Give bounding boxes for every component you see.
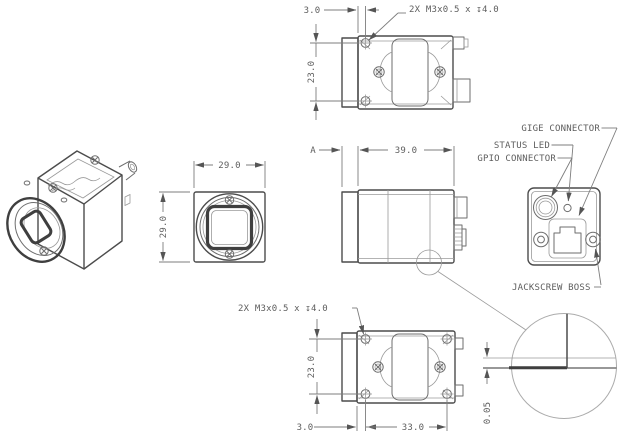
bottom-m3-hole — [441, 388, 454, 401]
front-view — [194, 192, 265, 262]
side-view — [342, 190, 526, 330]
jackscrew-boss-right — [586, 232, 601, 247]
bottom-dim-pitch: 33.0 — [402, 423, 424, 433]
gige-connector-label: GIGE CONNECTOR — [521, 124, 600, 134]
detail-leader-line — [438, 272, 526, 331]
isometric-view — [0, 151, 138, 272]
front-dim-width: 29.0 — [218, 161, 240, 171]
rear-view — [528, 188, 600, 265]
top-thread-note: 2X M3x0.5 x ↧4.0 — [409, 5, 499, 15]
top-dim-spacing: 23.0 — [307, 61, 317, 83]
camera-drawing-svg: 3.0 2X M3x0.5 x ↧4.0 23.0 29.0 29.0 — [0, 0, 624, 438]
bottom-dim-spacing: 23.0 — [307, 356, 317, 378]
detail-dim-gap: 0.05 — [483, 402, 493, 424]
status-led — [564, 204, 571, 211]
side-view-dimensions: A 39.0 — [310, 146, 454, 187]
jackscrew-boss-label: JACKSCREW BOSS — [512, 283, 591, 293]
bottom-thread-note: 2X M3x0.5 x ↧4.0 — [238, 304, 328, 314]
top-case-screw — [374, 67, 384, 77]
side-datum-label: A — [310, 146, 316, 156]
detail-view: 0.05 — [483, 314, 617, 425]
top-view-dimensions: 3.0 2X M3x0.5 x ↧4.0 23.0 — [304, 5, 499, 120]
rear-view-callouts: GIGE CONNECTOR STATUS LED GPIO CONNECTOR… — [477, 124, 617, 293]
gige-rj45-connector — [554, 227, 581, 253]
bottom-view — [342, 331, 463, 403]
top-view — [342, 36, 470, 109]
top-dim-offset: 3.0 — [304, 6, 321, 16]
technical-drawing-sheet: 3.0 2X M3x0.5 x ↧4.0 23.0 29.0 29.0 — [0, 0, 624, 438]
gpio-connector-label: GPIO CONNECTOR — [477, 154, 556, 164]
bottom-dim-offset: 3.0 — [297, 423, 314, 433]
bottom-m3-hole — [441, 333, 454, 346]
status-led-label: STATUS LED — [494, 141, 550, 151]
side-dim-length: 39.0 — [395, 146, 417, 156]
gpio-connector — [534, 196, 558, 220]
bottom-case-screw — [373, 362, 383, 372]
front-dim-height: 29.0 — [159, 216, 169, 238]
iso-top-screw — [91, 156, 99, 164]
jackscrew-boss-left — [534, 232, 549, 247]
